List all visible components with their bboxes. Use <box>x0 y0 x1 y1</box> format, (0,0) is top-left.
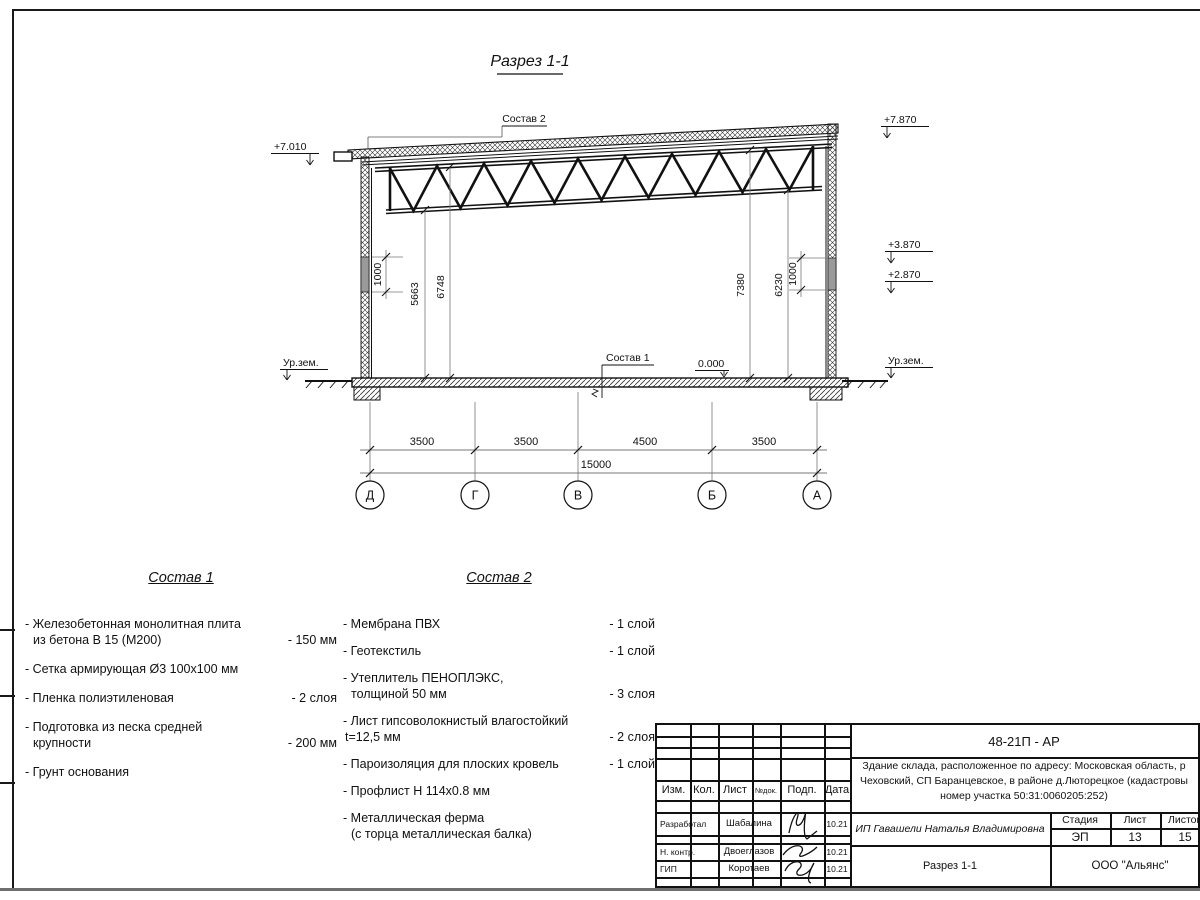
axis-label: В <box>574 489 582 503</box>
tb-stage-value: ЭП <box>1050 828 1110 845</box>
material-value: - 200 мм <box>282 735 337 751</box>
span-dim-label: 3500 <box>410 436 434 448</box>
material-line: - Железобетонная монолитная плита <box>25 616 241 632</box>
axis-label: А <box>813 489 822 503</box>
material-item: - Сетка армирующая Ø3 100х100 мм <box>25 661 337 677</box>
material-item: - Профлист Н 114х0.8 мм <box>343 783 655 799</box>
span-dim-label: 3500 <box>514 436 538 448</box>
frame-fold-tick <box>0 782 15 784</box>
tb-col-kol: Кол. <box>690 780 718 800</box>
total-span-label: 15000 <box>581 459 612 471</box>
svg-text:+2.870: +2.870 <box>888 269 921 281</box>
ground-line-left <box>305 381 352 388</box>
material-line: крупности <box>25 735 202 751</box>
signature-ncontr-gip <box>783 846 817 883</box>
tb-sheets-label: Листов <box>1160 812 1200 828</box>
ground-line-right <box>842 381 888 388</box>
ground-level-mark-left: Ур.зем. <box>280 357 328 380</box>
elevation-mark-zero: 0.000 <box>695 358 729 377</box>
material-item: - Мембрана ПВХ - 1 слой <box>343 616 655 632</box>
dim-1000-right-label: 1000 <box>787 262 799 286</box>
sostav1-header: Состав 1 <box>25 570 337 586</box>
tb-col-ndok: №док. <box>752 780 780 800</box>
tb-stage-label: Стадия <box>1050 812 1110 828</box>
material-item: - Железобетонная монолитная плита из бет… <box>25 616 337 648</box>
svg-text:+7.870: +7.870 <box>884 114 917 126</box>
tb-name-ncontr: Двоеглазов <box>718 843 780 860</box>
material-line: - Грунт основания <box>25 764 129 780</box>
tb-role-developer: Разработал <box>657 812 721 835</box>
left-wall <box>361 157 372 378</box>
material-value: - 1 слой <box>603 643 655 659</box>
right-wall-window-band <box>828 258 836 290</box>
axis-label: Д <box>366 489 375 503</box>
sostav2-header: Состав 2 <box>343 570 655 586</box>
sheet-bottom-edge <box>0 888 1200 891</box>
material-item: - Геотекстиль - 1 слой <box>343 643 655 659</box>
elevation-mark-7870: +7.870 <box>881 114 929 138</box>
material-item: - Утеплитель ПЕНОПЛЭКС, толщиной 50 мм -… <box>343 670 655 702</box>
material-line: - Профлист Н 114х0.8 мм <box>343 783 490 799</box>
frame-fold-tick <box>0 695 15 697</box>
frame-fold-tick <box>0 629 15 631</box>
material-item: - Лист гипсоволокнистый влагостойкий t=1… <box>343 713 655 745</box>
material-line: - Лист гипсоволокнистый влагостойкий <box>343 713 568 729</box>
material-line: - Пленка полиэтиленовая <box>25 690 174 706</box>
material-line: - Мембрана ПВХ <box>343 616 440 632</box>
svg-text:Ур.зем.: Ур.зем. <box>888 355 924 367</box>
material-value: - 150 мм <box>282 632 337 648</box>
material-line: толщиной 50 мм <box>343 686 503 702</box>
tb-project-line: номер участка 50:31:0060205:252) <box>850 789 1198 804</box>
material-line: - Подготовка из песка средней <box>25 719 202 735</box>
tb-doc-number: 48-21П - АР <box>850 725 1198 757</box>
tb-project-name: Здание склада, расположенное по адресу: … <box>850 759 1198 812</box>
dim-6230-label: 6230 <box>773 273 785 297</box>
material-item: - Грунт основания <box>25 764 337 780</box>
tb-date-developer: 10.21 <box>824 812 850 835</box>
right-foundation <box>810 387 842 400</box>
tb-customer: ИП Гавашели Наталья Владимировна <box>850 812 1050 845</box>
tb-col-podp: Подп. <box>780 780 824 800</box>
tb-role-gip: ГИП <box>657 860 721 877</box>
elevation-mark-7010: +7.010 <box>271 141 319 165</box>
material-value: - 1 слой <box>603 616 655 632</box>
window-dim-left: 1000 <box>372 250 403 299</box>
material-line: t=12,5 мм <box>343 729 568 745</box>
left-foundation <box>354 387 380 400</box>
ground-level-mark-right: Ур.зем. <box>885 355 933 378</box>
material-line: - Металлическая ферма <box>343 810 532 826</box>
tb-name-developer: Шабалина <box>718 812 780 835</box>
floor-break-symbol <box>592 389 598 397</box>
sostav1-list: Состав 1 - Железобетонная монолитная пли… <box>25 570 337 793</box>
tb-date-ncontr: 10.21 <box>824 843 850 860</box>
sostav1-callout: Состав 1 <box>592 352 654 398</box>
tb-project-line: Чеховский, СП Баранцевское, в районе д.Л… <box>850 774 1198 789</box>
tb-col-data: Дата <box>824 780 850 800</box>
floor-slab <box>352 378 848 400</box>
axis-label: Б <box>708 489 716 503</box>
left-wall-window-band <box>361 257 369 292</box>
material-line: - Геотекстиль <box>343 643 421 659</box>
sostav2-label: Состав 2 <box>502 113 546 125</box>
material-line: - Утеплитель ПЕНОПЛЭКС, <box>343 670 503 686</box>
material-value: - 2 слоя <box>604 729 655 745</box>
svg-text:+3.870: +3.870 <box>888 239 921 251</box>
axis-label: Г <box>472 489 479 503</box>
tb-sheet-label: Лист <box>1110 812 1160 828</box>
material-item: - Подготовка из песка средней крупности … <box>25 719 337 751</box>
span-dim-label: 3500 <box>752 436 776 448</box>
tb-sheet-value: 13 <box>1110 828 1160 845</box>
material-item: - Пленка полиэтиленовая - 2 слоя <box>25 690 337 706</box>
tb-drawing-name: Разрез 1-1 <box>850 845 1050 886</box>
material-item: - Металлическая ферма (с торца металличе… <box>343 810 655 842</box>
window-dim-right: 1000 <box>787 251 828 297</box>
tb-company: ООО "Альянс" <box>1050 845 1200 886</box>
dim-1000-left-label: 1000 <box>372 263 384 287</box>
tb-role-ncontr: Н. контр. <box>657 843 721 860</box>
title-block: Изм. Кол. Лист №док. Подп. Дата Разработ… <box>655 723 1200 888</box>
signatures <box>777 805 827 885</box>
material-value: - 3 слоя <box>604 686 655 702</box>
tb-col-izm: Изм. <box>657 780 690 800</box>
dim-6748-label: 6748 <box>435 275 447 299</box>
material-line: из бетона В 15 (М200) <box>25 632 241 648</box>
section-drawing: Разрез 1-1 Состав 2 <box>0 0 1200 560</box>
tb-name-gip: Коротаев <box>718 860 780 877</box>
tb-project-line: Здание склада, расположенное по адресу: … <box>850 759 1198 774</box>
roof-deck <box>334 124 838 165</box>
dim-7380-label: 7380 <box>735 273 747 297</box>
tb-sheets-value: 15 <box>1160 828 1200 845</box>
material-line: - Пароизоляция для плоских кровель <box>343 756 559 772</box>
signature-developer <box>789 813 817 839</box>
right-wall <box>826 124 836 378</box>
sostav1-label: Состав 1 <box>606 352 650 364</box>
dim-5663-label: 5663 <box>409 282 421 306</box>
material-item: - Пароизоляция для плоских кровель - 1 с… <box>343 756 655 772</box>
svg-text:0.000: 0.000 <box>698 358 724 370</box>
material-value: - 1 слой <box>603 756 655 772</box>
material-line: - Сетка армирующая Ø3 100х100 мм <box>25 661 238 677</box>
elevation-mark-3870: +3.870 <box>885 239 933 263</box>
svg-text:Ур.зем.: Ур.зем. <box>283 357 319 369</box>
tb-col-list: Лист <box>718 780 752 800</box>
sostav2-list: Состав 2 - Мембрана ПВХ - 1 слой - Геоте… <box>343 570 655 853</box>
tb-date-gip: 10.21 <box>824 860 850 877</box>
roof-edge-plate <box>334 152 352 161</box>
material-value: - 2 слоя <box>286 690 337 706</box>
axis-bubbles <box>356 481 831 509</box>
svg-text:+7.010: +7.010 <box>274 141 307 153</box>
drawing-title: Разрез 1-1 <box>490 53 569 70</box>
span-dim-label: 4500 <box>633 436 657 448</box>
elevation-mark-2870: +2.870 <box>885 269 933 293</box>
material-line: (с торца металлическая балка) <box>343 826 532 842</box>
